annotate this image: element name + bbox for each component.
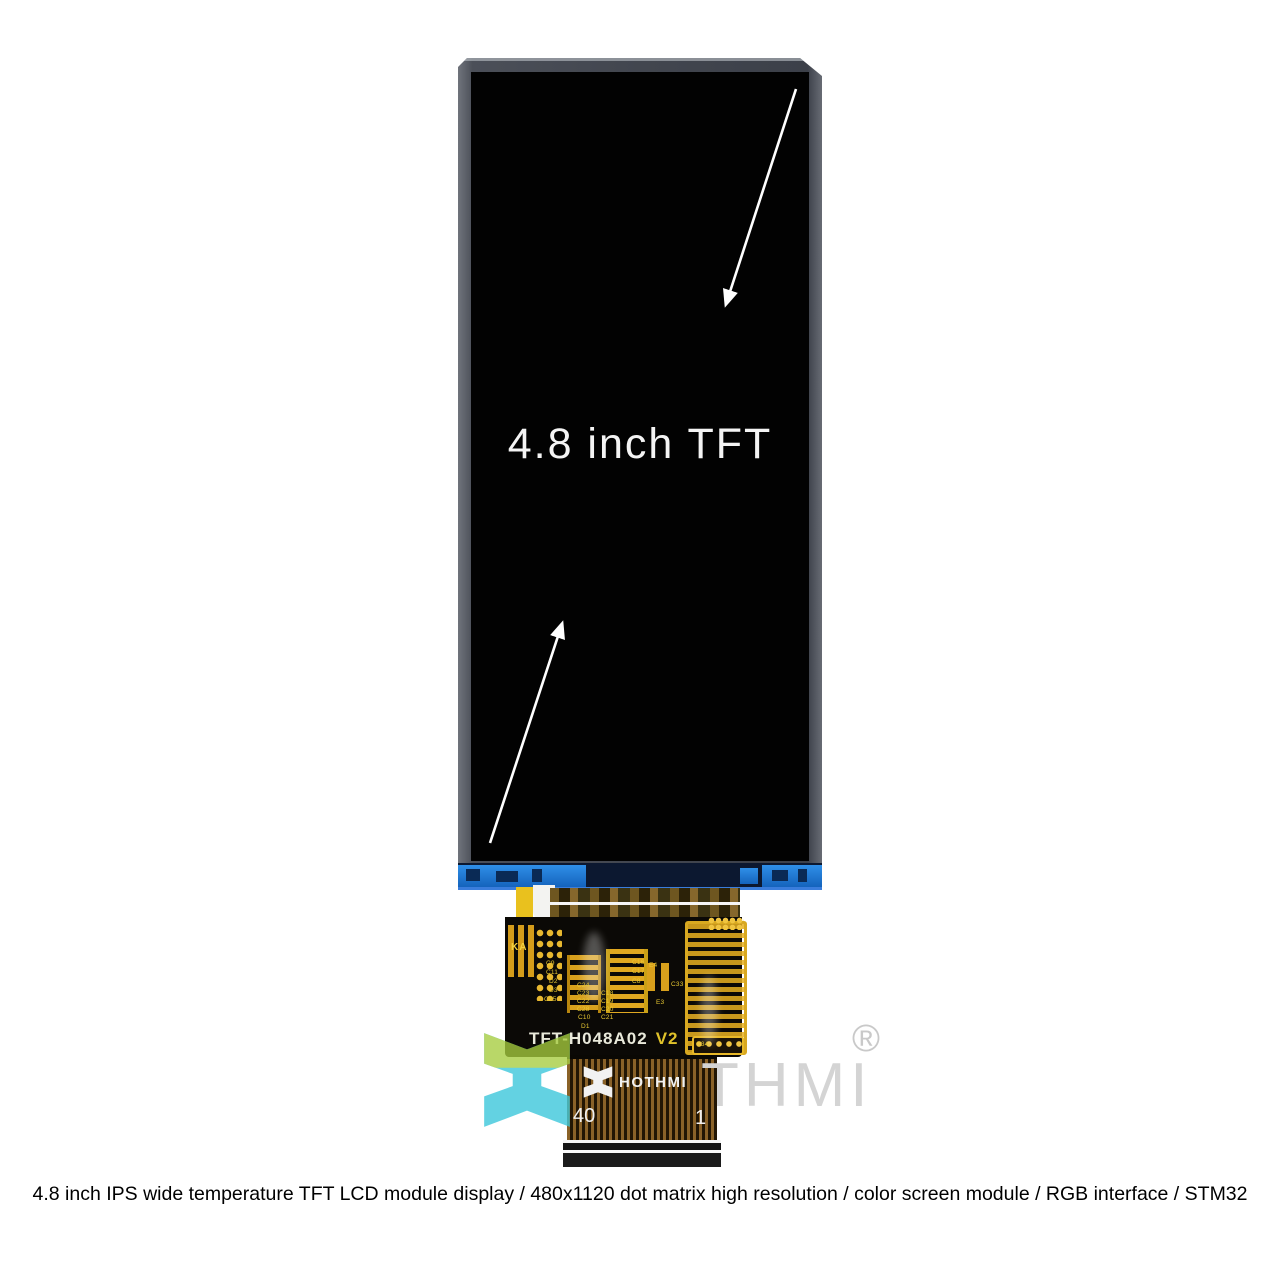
component-label: C21 <box>601 1014 614 1021</box>
component-label: C23 <box>577 990 590 997</box>
component-label: C9 <box>546 960 555 967</box>
component-label: D1 <box>581 1023 590 1030</box>
component-label: C25 <box>544 996 557 1003</box>
chip-mark <box>466 869 480 881</box>
kapton-tape-yellow <box>516 887 533 918</box>
driver-strip-right-patch <box>762 865 822 887</box>
chip-mark <box>772 870 788 881</box>
chip-mark <box>798 869 807 882</box>
flex-white-line <box>550 902 740 905</box>
pcb-version: V2 <box>656 1029 679 1048</box>
glare <box>701 975 717 1045</box>
chip-mark <box>496 871 518 882</box>
component-label: D2 <box>549 978 558 985</box>
chip-mark <box>532 869 542 882</box>
component-label: C11 <box>546 969 558 976</box>
component-label: C33 <box>671 981 684 988</box>
watermark-text: THMI <box>701 1050 873 1121</box>
tft-display-module: 4.8 inch TFT <box>458 58 822 863</box>
gold-component-block <box>685 921 747 1055</box>
component-label: E4 <box>649 962 657 969</box>
via-row <box>708 917 744 930</box>
component-label: C16 <box>632 959 645 966</box>
flex-output-cable: HOTHMI 40 1 <box>567 1055 717 1167</box>
screen-size-label: 4.8 inch TFT <box>471 420 809 469</box>
flex-brand-text: HOTHMI <box>619 1074 687 1091</box>
hothmi-logo-icon <box>581 1065 615 1099</box>
flex-logo-row: HOTHMI <box>581 1065 687 1099</box>
driver-strip-left-patch <box>458 865 586 887</box>
display-screen: 4.8 inch TFT <box>471 72 809 861</box>
component-label: C17 <box>632 968 645 975</box>
component-label: D3 <box>549 987 558 994</box>
component-label: C28 <box>577 1006 590 1013</box>
component-label: C34 <box>696 1041 709 1048</box>
product-caption: 4.8 inch IPS wide temperature TFT LCD mo… <box>0 1183 1280 1206</box>
component-label: C19 <box>601 998 614 1005</box>
component-label: C20 <box>601 1006 614 1013</box>
pcb-marking: KA <box>511 942 527 953</box>
product-photo: 4.8 inch TFT <box>0 0 1280 1280</box>
component-label: C8 <box>632 978 641 985</box>
component-label: E3 <box>656 999 664 1006</box>
flex-connector-edge <box>563 1140 721 1167</box>
component-label: C22 <box>577 998 590 1005</box>
watermark-logo-icon <box>476 1020 578 1140</box>
component-label: C18 <box>601 990 614 997</box>
panel-driver-strip <box>458 863 822 890</box>
component-label: C10 <box>578 1014 591 1021</box>
component-label: C24 <box>577 982 590 989</box>
driver-strip-right-small-patch <box>740 868 758 884</box>
registered-trademark-icon: ® <box>852 1018 880 1061</box>
